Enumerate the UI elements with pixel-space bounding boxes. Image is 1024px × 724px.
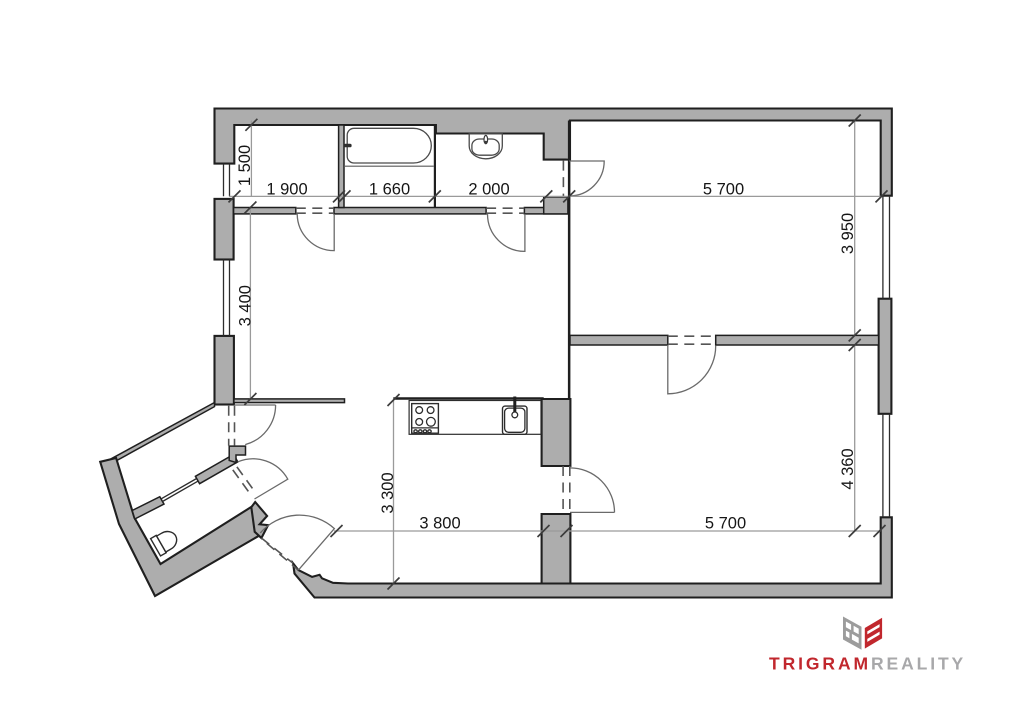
svg-text:3 800: 3 800 xyxy=(419,515,460,533)
svg-text:1 500: 1 500 xyxy=(236,145,254,186)
svg-text:2 000: 2 000 xyxy=(468,181,509,199)
svg-text:3 300: 3 300 xyxy=(379,472,397,513)
svg-text:5 700: 5 700 xyxy=(705,515,746,533)
svg-text:3 950: 3 950 xyxy=(839,213,857,254)
svg-text:1 900: 1 900 xyxy=(266,181,307,199)
svg-text:4 360: 4 360 xyxy=(839,448,857,489)
svg-text:1 660: 1 660 xyxy=(369,181,410,199)
svg-text:3 400: 3 400 xyxy=(237,285,255,326)
svg-text:5 700: 5 700 xyxy=(703,181,744,199)
svg-text:TRIGRAMREALITY: TRIGRAMREALITY xyxy=(769,654,966,674)
